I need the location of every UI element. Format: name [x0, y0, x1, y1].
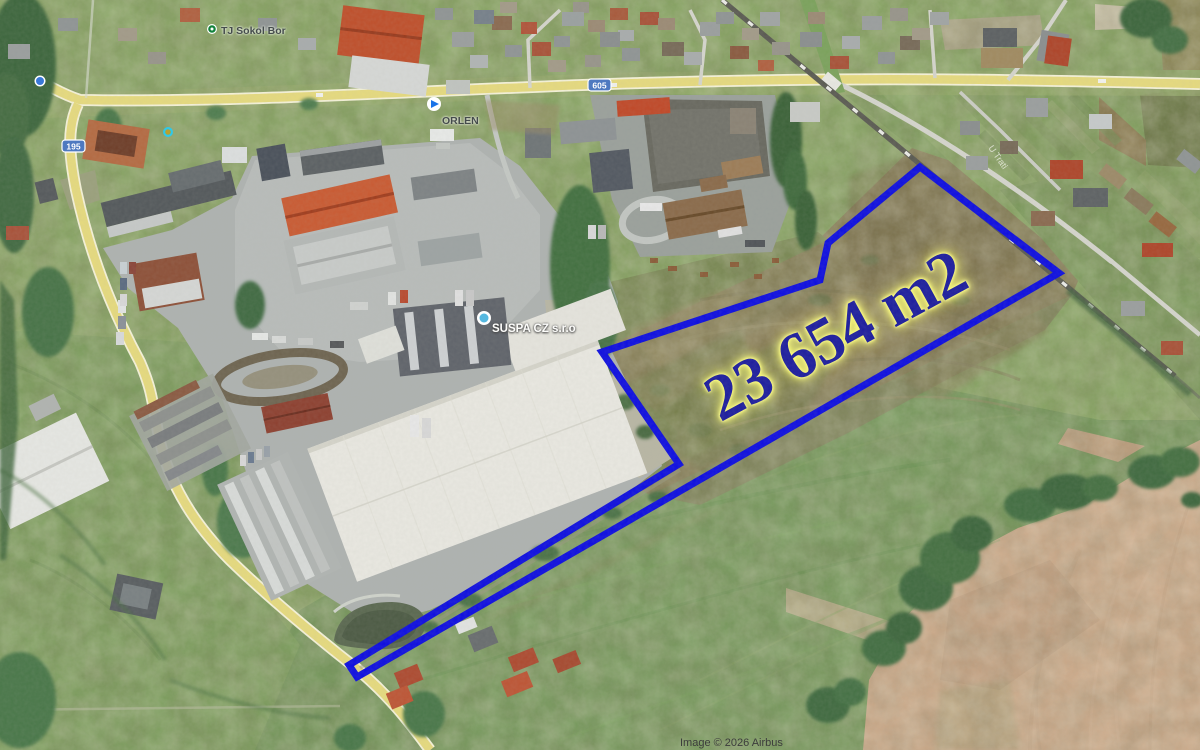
svg-text:ORLEN: ORLEN [442, 115, 479, 127]
svg-text:SUSPA CZ s.r.o: SUSPA CZ s.r.o [492, 323, 576, 335]
svg-text:Image © 2026 Airbus: Image © 2026 Airbus [680, 737, 783, 749]
svg-text:605: 605 [592, 81, 606, 91]
svg-text:TJ Sokol Bor: TJ Sokol Bor [221, 25, 286, 37]
svg-text:195: 195 [66, 142, 80, 152]
